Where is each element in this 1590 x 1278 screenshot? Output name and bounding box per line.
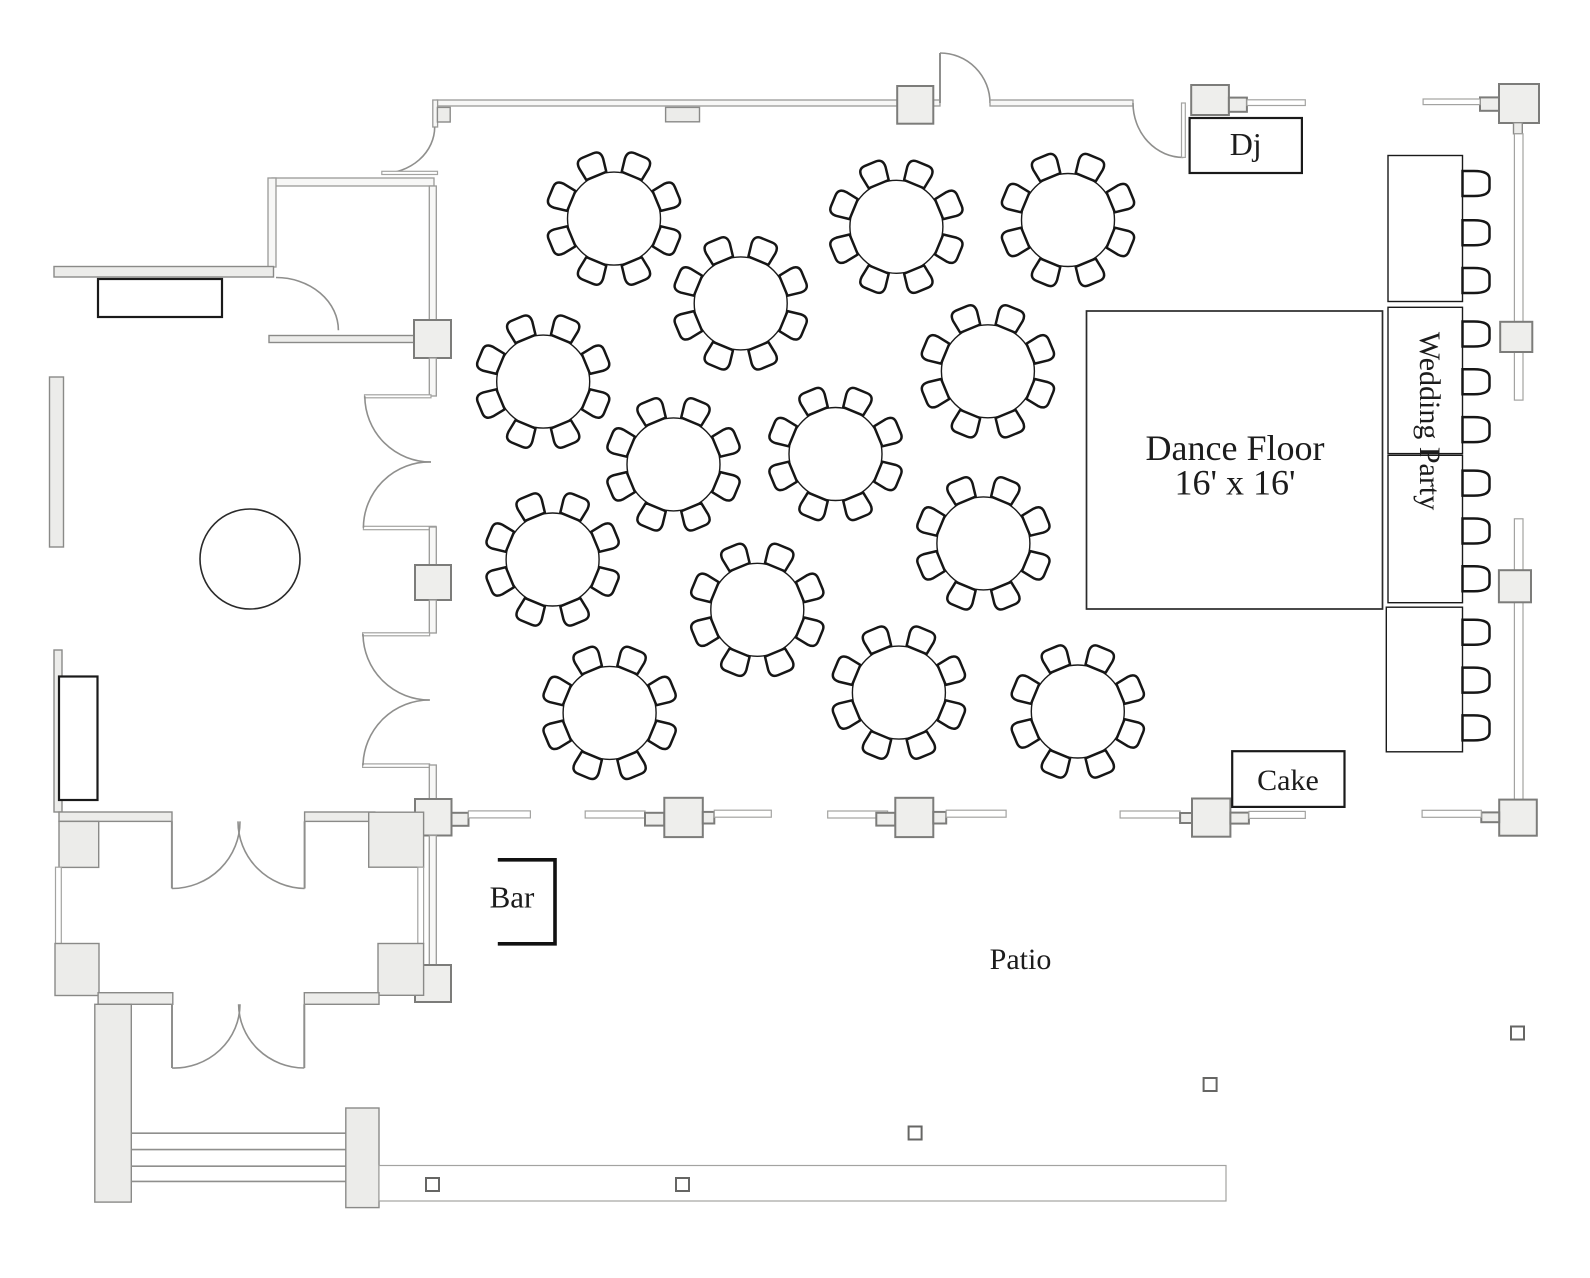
svg-text:Dj: Dj <box>1230 126 1262 162</box>
svg-text:Cake: Cake <box>1257 764 1319 797</box>
svg-text:Patio: Patio <box>990 943 1052 976</box>
svg-text:Wedding Party: Wedding Party <box>1413 332 1446 510</box>
svg-text:Bar: Bar <box>490 880 535 915</box>
svg-text:16' x 16': 16' x 16' <box>1175 463 1296 503</box>
